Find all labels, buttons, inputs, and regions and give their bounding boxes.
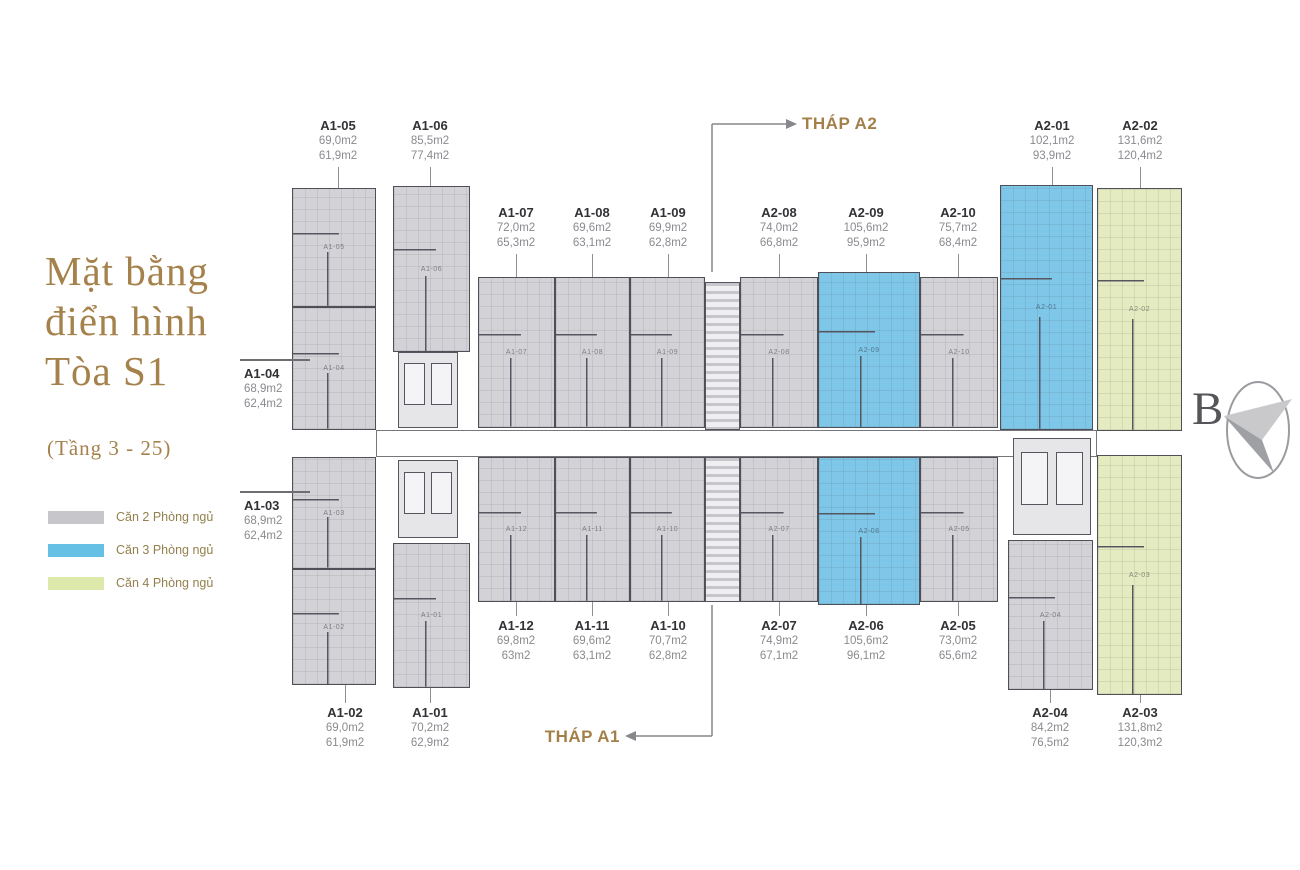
unit-label-A1-08: A1-0869,6m263,1m2 (552, 205, 632, 251)
unit-A2-01-id: A2-01 (1012, 118, 1092, 134)
thap-a1-arrow-icon (625, 731, 636, 741)
unit-label-A1-12: A1-1269,8m263m2 (476, 618, 556, 664)
legend-row-2br: Căn 2 Phòng ngủ (48, 506, 213, 528)
unit-A2-03-area2: 120,3m2 (1100, 736, 1180, 751)
unit-A2-10-area2: 68,4m2 (918, 236, 998, 251)
unit-label-A1-10: A1-1070,7m262,8m2 (628, 618, 708, 664)
unit-A1-11-area2: 63,1m2 (552, 649, 632, 664)
unit-label-A1-03: A1-0368,9m262,4m2 (244, 498, 314, 544)
leader-A1-10 (668, 602, 669, 616)
legend-label-4br: Căn 4 Phòng ngủ (116, 576, 213, 590)
unit-label-A1-02: A1-0269,0m261,9m2 (305, 705, 385, 751)
elevator-car-icon (1056, 452, 1083, 505)
unit-A1-06-area2: 77,4m2 (390, 149, 470, 164)
leader-A1-07 (516, 254, 517, 277)
unit-A1-01-id: A1-01 (390, 705, 470, 721)
unit-label-A2-03: A2-03131,8m2120,3m2 (1100, 705, 1180, 751)
unit-A1-11-area1: 69,6m2 (552, 634, 632, 649)
unit-label-A2-02: A2-02131,6m2120,4m2 (1100, 118, 1180, 164)
elevator-car-icon (431, 472, 452, 515)
unit-A2-03: A2-03 (1097, 455, 1182, 695)
leader-A1-12 (516, 602, 517, 616)
unit-code: A2-01 (1036, 304, 1057, 311)
unit-code: A2-09 (858, 347, 879, 354)
unit-A1-03-area1: 68,9m2 (244, 514, 314, 529)
title-line-2: điển hình (45, 296, 209, 346)
unit-A2-08: A2-08 (740, 277, 818, 428)
leader-A2-04 (1050, 690, 1051, 703)
unit-A2-07: A2-07 (740, 457, 818, 602)
unit-A1-05-id: A1-05 (298, 118, 378, 134)
unit-A1-10-area1: 70,7m2 (628, 634, 708, 649)
unit-label-A1-09: A1-0969,9m262,8m2 (628, 205, 708, 251)
unit-A2-01-area2: 93,9m2 (1012, 149, 1092, 164)
page-title: Mặt bằng điển hình Tòa S1 (45, 246, 209, 396)
unit-label-A1-06: A1-0685,5m277,4m2 (390, 118, 470, 164)
unit-A1-01: A1-01 (393, 543, 470, 688)
unit-code: A1-02 (323, 624, 344, 631)
unit-A2-04-area1: 84,2m2 (1010, 721, 1090, 736)
unit-A2-10-id: A2-10 (918, 205, 998, 221)
unit-A2-01-area1: 102,1m2 (1012, 134, 1092, 149)
unit-A2-10: A2-10 (920, 277, 998, 428)
unit-A2-10-area1: 75,7m2 (918, 221, 998, 236)
legend-label-2br: Căn 2 Phòng ngủ (116, 510, 213, 524)
unit-label-A2-08: A2-0874,0m266,8m2 (739, 205, 819, 251)
unit-code: A1-04 (323, 365, 344, 372)
unit-A2-06-area2: 96,1m2 (826, 649, 906, 664)
leader-A2-01 (1052, 167, 1053, 185)
unit-A1-02-area2: 61,9m2 (305, 736, 385, 751)
elevator-car-icon (1021, 452, 1048, 505)
unit-A1-11: A1-11 (555, 457, 630, 602)
leader-A2-05 (958, 602, 959, 616)
unit-A1-08-id: A1-08 (552, 205, 632, 221)
leader-A2-08 (779, 254, 780, 277)
unit-A1-06: A1-06 (393, 186, 470, 352)
unit-A2-09-id: A2-09 (826, 205, 906, 221)
unit-A1-09-area2: 62,8m2 (628, 236, 708, 251)
unit-code: A1-11 (582, 526, 603, 533)
leader-A1-01 (430, 688, 431, 703)
unit-A2-06: A2-06 (818, 457, 920, 605)
unit-A1-10-area2: 62,8m2 (628, 649, 708, 664)
unit-A1-03-id: A1-03 (244, 498, 314, 514)
unit-A1-02-area1: 69,0m2 (305, 721, 385, 736)
unit-A2-01: A2-01 (1000, 185, 1093, 430)
unit-label-A2-09: A2-09105,6m295,9m2 (826, 205, 906, 251)
unit-code: A1-06 (421, 266, 442, 273)
unit-A1-07-area2: 65,3m2 (476, 236, 556, 251)
unit-A2-08-area1: 74,0m2 (739, 221, 819, 236)
unit-A2-09-area1: 105,6m2 (826, 221, 906, 236)
compass-circle-icon (1227, 382, 1289, 478)
core-lift (398, 352, 458, 428)
leader-A1-08 (592, 254, 593, 277)
unit-code: A1-07 (506, 349, 527, 356)
unit-label-A2-01: A2-01102,1m293,9m2 (1012, 118, 1092, 164)
core-stair (705, 457, 740, 602)
leader-A2-06 (866, 605, 867, 616)
unit-A2-06-area1: 105,6m2 (826, 634, 906, 649)
unit-code: A1-05 (323, 244, 344, 251)
elevator-car-icon (404, 472, 425, 515)
unit-A1-02-id: A1-02 (305, 705, 385, 721)
unit-A2-06-id: A2-06 (826, 618, 906, 634)
unit-A1-09: A1-09 (630, 277, 705, 428)
leader-A2-10 (958, 254, 959, 277)
floor-range-subtitle: (Tầng 3 - 25) (47, 436, 171, 461)
unit-A1-07: A1-07 (478, 277, 555, 428)
unit-A2-03-id: A2-03 (1100, 705, 1180, 721)
legend-swatch-2br (48, 511, 104, 524)
legend-swatch-3br (48, 544, 104, 557)
unit-label-A1-01: A1-0170,2m262,9m2 (390, 705, 470, 751)
legend-row-4br: Căn 4 Phòng ngủ (48, 572, 213, 594)
unit-A2-07-area1: 74,9m2 (739, 634, 819, 649)
unit-label-A1-05: A1-0569,0m261,9m2 (298, 118, 378, 164)
unit-A1-09-id: A1-09 (628, 205, 708, 221)
unit-A2-02-area2: 120,4m2 (1100, 149, 1180, 164)
corridor (376, 430, 1097, 457)
unit-code: A2-03 (1129, 572, 1150, 579)
unit-A1-12-area1: 69,8m2 (476, 634, 556, 649)
unit-code: A2-02 (1129, 306, 1150, 313)
core-lift (398, 460, 458, 538)
unit-code: A2-07 (768, 526, 789, 533)
unit-A1-03-area2: 62,4m2 (244, 529, 314, 544)
unit-A2-02: A2-02 (1097, 188, 1182, 431)
compass-needle-light-icon (1224, 399, 1292, 440)
title-line-3: Tòa S1 (45, 346, 209, 396)
legend: Căn 2 Phòng ngủ Căn 3 Phòng ngủ Căn 4 Ph… (48, 506, 213, 605)
compass-north-letter: B (1192, 382, 1223, 436)
unit-label-A2-07: A2-0774,9m267,1m2 (739, 618, 819, 664)
unit-A1-06-area1: 85,5m2 (390, 134, 470, 149)
unit-code: A2-05 (948, 526, 969, 533)
unit-A1-11-id: A1-11 (552, 618, 632, 634)
unit-A1-04-id: A1-04 (244, 366, 314, 382)
unit-A2-02-area1: 131,6m2 (1100, 134, 1180, 149)
tower-a1-label: THÁP A1 (540, 727, 620, 747)
unit-label-A2-05: A2-0573,0m265,6m2 (918, 618, 998, 664)
unit-label-A1-07: A1-0772,0m265,3m2 (476, 205, 556, 251)
elevator-car-icon (404, 363, 425, 404)
unit-A1-08: A1-08 (555, 277, 630, 428)
unit-A1-05-area1: 69,0m2 (298, 134, 378, 149)
leader-A2-02 (1140, 167, 1141, 188)
leader-A1-05 (338, 167, 339, 188)
unit-A2-03-area1: 131,8m2 (1100, 721, 1180, 736)
unit-A2-08-area2: 66,8m2 (739, 236, 819, 251)
unit-A2-05-area1: 73,0m2 (918, 634, 998, 649)
unit-A1-07-id: A1-07 (476, 205, 556, 221)
unit-A2-02-id: A2-02 (1100, 118, 1180, 134)
unit-A1-12-id: A1-12 (476, 618, 556, 634)
leader-A2-09 (866, 254, 867, 272)
unit-label-A2-06: A2-06105,6m296,1m2 (826, 618, 906, 664)
unit-A1-07-area1: 72,0m2 (476, 221, 556, 236)
unit-A2-05-area2: 65,6m2 (918, 649, 998, 664)
unit-A1-01-area2: 62,9m2 (390, 736, 470, 751)
unit-A2-07-area2: 67,1m2 (739, 649, 819, 664)
unit-A2-04: A2-04 (1008, 540, 1093, 690)
unit-code: A2-06 (858, 528, 879, 535)
unit-code: A2-04 (1040, 612, 1061, 619)
unit-A2-07-id: A2-07 (739, 618, 819, 634)
unit-code: A2-08 (768, 349, 789, 356)
floor-plan-page: Mặt bằng điển hình Tòa S1 (Tầng 3 - 25) … (0, 0, 1300, 870)
unit-A1-04-area2: 62,4m2 (244, 397, 314, 412)
unit-A2-08-id: A2-08 (739, 205, 819, 221)
unit-A1-12-area2: 63m2 (476, 649, 556, 664)
unit-A1-10: A1-10 (630, 457, 705, 602)
unit-A1-08-area2: 63,1m2 (552, 236, 632, 251)
unit-code: A1-08 (582, 349, 603, 356)
unit-code: A1-01 (421, 612, 442, 619)
unit-A2-09-area2: 95,9m2 (826, 236, 906, 251)
unit-A1-05: A1-05 (292, 188, 376, 307)
unit-A1-10-id: A1-10 (628, 618, 708, 634)
tower-a2-label: THÁP A2 (802, 114, 877, 134)
unit-A2-05-id: A2-05 (918, 618, 998, 634)
unit-A1-08-area1: 69,6m2 (552, 221, 632, 236)
legend-swatch-4br (48, 577, 104, 590)
leader-A1-04 (240, 359, 310, 361)
compass-needle-dark-icon (1224, 416, 1274, 473)
unit-code: A1-09 (657, 349, 678, 356)
unit-A1-09-area1: 69,9m2 (628, 221, 708, 236)
unit-A1-04-area1: 68,9m2 (244, 382, 314, 397)
unit-label-A1-04: A1-0468,9m262,4m2 (244, 366, 314, 412)
unit-A2-09: A2-09 (818, 272, 920, 428)
unit-A1-02: A1-02 (292, 569, 376, 685)
unit-label-A2-04: A2-0484,2m276,5m2 (1010, 705, 1090, 751)
unit-A2-05: A2-05 (920, 457, 998, 602)
unit-code: A1-12 (506, 526, 527, 533)
leader-A1-02 (345, 685, 346, 703)
leader-A2-07 (779, 602, 780, 616)
unit-A1-12: A1-12 (478, 457, 555, 602)
unit-code: A1-03 (323, 510, 344, 517)
leader-A1-03 (240, 491, 310, 493)
elevator-car-icon (431, 363, 452, 404)
leader-A1-09 (668, 254, 669, 277)
legend-row-3br: Căn 3 Phòng ngủ (48, 539, 213, 561)
thap-a2-arrow-icon (786, 119, 797, 129)
title-line-1: Mặt bằng (45, 246, 209, 296)
leader-A1-11 (592, 602, 593, 616)
unit-A1-05-area2: 61,9m2 (298, 149, 378, 164)
unit-label-A1-11: A1-1169,6m263,1m2 (552, 618, 632, 664)
unit-A1-06-id: A1-06 (390, 118, 470, 134)
unit-code: A1-10 (657, 526, 678, 533)
legend-label-3br: Căn 3 Phòng ngủ (116, 543, 213, 557)
leader-A1-06 (430, 167, 431, 186)
core-stair (705, 282, 740, 430)
leader-A2-03 (1140, 695, 1141, 703)
core-lift (1013, 438, 1091, 535)
unit-A1-01-area1: 70,2m2 (390, 721, 470, 736)
unit-code: A2-10 (948, 349, 969, 356)
unit-A2-04-id: A2-04 (1010, 705, 1090, 721)
unit-label-A2-10: A2-1075,7m268,4m2 (918, 205, 998, 251)
unit-A2-04-area2: 76,5m2 (1010, 736, 1090, 751)
